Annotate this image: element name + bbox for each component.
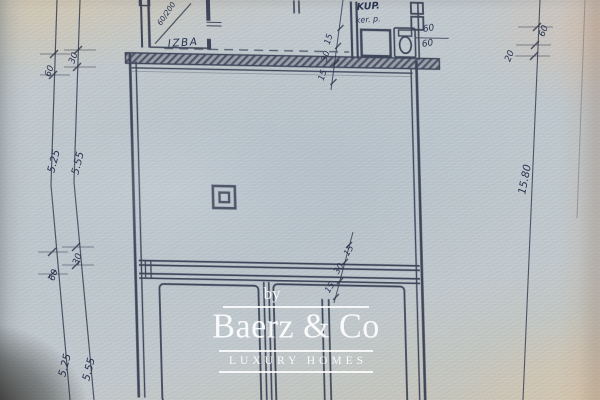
watermark-by: by <box>264 285 281 302</box>
hatched-wall <box>125 53 439 70</box>
watermark: by Baerz & Co LUXURY HOMES <box>215 285 377 373</box>
interior-cross-wall <box>139 260 420 283</box>
dim-chain-top-15b: 15 <box>317 69 330 82</box>
dim-left-555-top: 5.55 <box>69 150 86 176</box>
dim-right-1580: 15.80 <box>516 163 534 195</box>
paper-fold-line <box>577 0 585 218</box>
dim-right-20: 20 <box>503 49 517 64</box>
dim-chain-mid-15a: 15 <box>342 244 356 258</box>
dim-left-555-bottom: 5.55 <box>80 356 97 382</box>
dim-left-30-bottom: 30 <box>71 252 84 266</box>
dim-chain-top-15a: 15 <box>323 33 336 46</box>
terrace-dashed-line <box>164 48 349 52</box>
dim-left-525-bottom: 5.25 <box>56 352 73 378</box>
watermark-tagline: LUXURY HOMES <box>225 355 367 367</box>
watermark-brand: Baerz & Co <box>212 309 379 345</box>
shower-tray-icon <box>361 30 391 57</box>
dim-left-30-top: 30 <box>67 51 80 65</box>
kup-floor-label: ker. p. <box>356 14 381 25</box>
plan-labels: IZBA KUP. ker. p. 60/200 <box>155 0 381 50</box>
pier-top <box>411 3 423 14</box>
dim-bath-60b: 60 <box>421 38 434 50</box>
watermark-rule-middle <box>219 350 373 352</box>
toilet-tank-icon <box>399 30 412 36</box>
chimney-icon <box>213 186 236 208</box>
floor-plan-photo: IZBA KUP. ker. p. 60/200 60 30 5.25 5.55… <box>0 0 600 400</box>
dim-left-525-top: 5.25 <box>45 148 62 174</box>
izba-room-label: IZBA <box>167 36 198 50</box>
watermark-rule-bottom <box>219 371 373 373</box>
dim-bath-60a: 60 <box>422 23 435 35</box>
terrace-posts <box>294 0 299 13</box>
toilet-bowl-icon <box>399 37 411 54</box>
kup-room-label: KUP. <box>356 0 380 13</box>
